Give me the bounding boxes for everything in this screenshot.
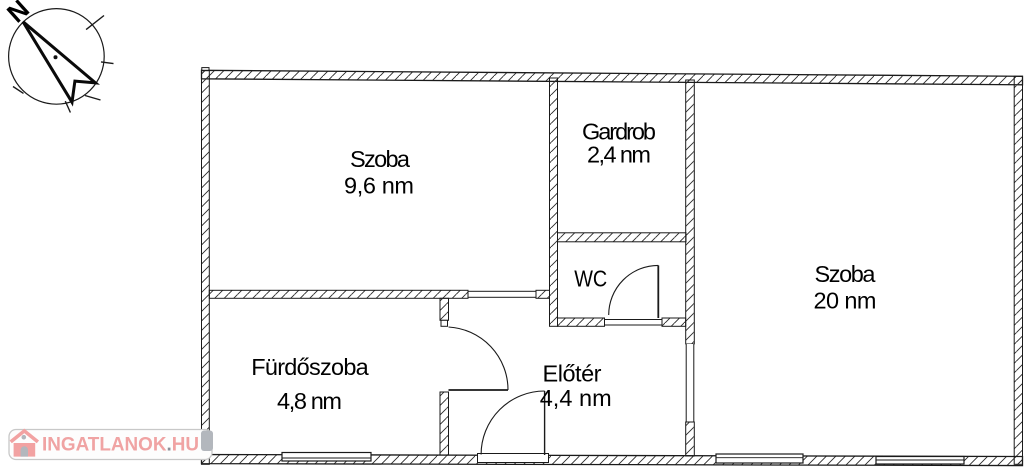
svg-text:Szoba: Szoba xyxy=(350,146,411,172)
svg-text:Fürdőszoba: Fürdőszoba xyxy=(251,354,369,380)
svg-text:9,6 nm: 9,6 nm xyxy=(344,173,414,199)
svg-text:4,8 nm: 4,8 nm xyxy=(277,388,342,414)
svg-text:WC: WC xyxy=(574,266,607,292)
svg-text:Szoba: Szoba xyxy=(815,261,877,287)
svg-text:20 nm: 20 nm xyxy=(814,288,877,314)
svg-text:2,4 nm: 2,4 nm xyxy=(587,142,651,168)
svg-text:4,4 nm: 4,4 nm xyxy=(540,385,612,411)
svg-text:INGATLANOK.HU: INGATLANOK.HU xyxy=(42,434,199,456)
svg-text:Előtér: Előtér xyxy=(543,361,602,387)
